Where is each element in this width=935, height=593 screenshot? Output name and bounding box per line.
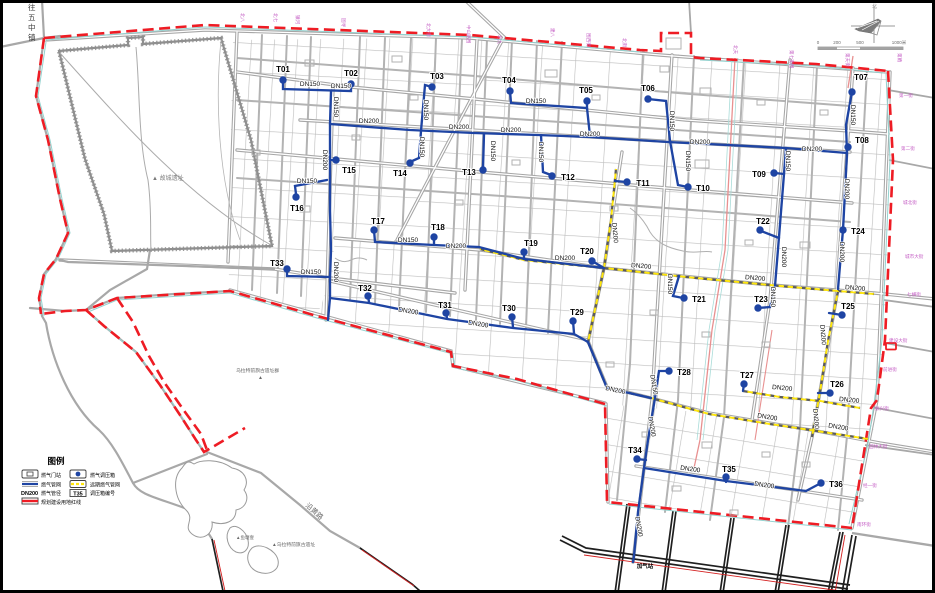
- svg-text:DN200: DN200: [332, 262, 339, 283]
- svg-text:T32: T32: [358, 284, 372, 293]
- svg-text:DN200: DN200: [359, 118, 380, 125]
- svg-text:T18: T18: [431, 223, 445, 232]
- svg-text:T26: T26: [830, 380, 844, 389]
- svg-text:镇: 镇: [28, 32, 36, 42]
- svg-text:北大街: 北大街: [425, 23, 432, 37]
- svg-text:T04: T04: [502, 76, 516, 85]
- svg-text:T27: T27: [740, 371, 754, 380]
- svg-text:DN200: DN200: [446, 243, 467, 250]
- svg-text:T25: T25: [841, 302, 855, 311]
- svg-text:往: 往: [28, 2, 36, 12]
- svg-text:DN200: DN200: [802, 146, 823, 153]
- svg-text:第夫街: 第夫街: [844, 53, 851, 67]
- svg-text:园林大街: 园林大街: [869, 443, 888, 450]
- svg-text:T22: T22: [756, 217, 770, 226]
- svg-text:T11: T11: [636, 179, 650, 188]
- svg-text:DN200: DN200: [838, 242, 845, 263]
- svg-text:T21: T21: [692, 295, 706, 304]
- svg-text:DN150: DN150: [489, 141, 496, 162]
- svg-text:T10: T10: [696, 184, 710, 193]
- svg-text:南环街: 南环街: [857, 521, 871, 528]
- svg-text:T28: T28: [677, 368, 691, 377]
- svg-text:DN150: DN150: [769, 287, 776, 308]
- svg-text:DN150: DN150: [684, 151, 691, 172]
- svg-text:T35: T35: [722, 465, 736, 474]
- svg-text:T05: T05: [579, 86, 593, 95]
- svg-text:围西街: 围西街: [585, 33, 592, 47]
- svg-text:第二街: 第二街: [901, 145, 915, 152]
- svg-text:七横街: 七横街: [907, 291, 921, 298]
- svg-text:DN200: DN200: [690, 139, 711, 146]
- svg-text:五: 五: [28, 13, 36, 22]
- svg-text:DN150: DN150: [666, 274, 673, 295]
- svg-text:DN200: DN200: [321, 150, 328, 171]
- svg-text:燃气管径: 燃气管径: [41, 490, 61, 497]
- svg-text:燃气调压箱: 燃气调压箱: [90, 472, 115, 479]
- svg-text:DN200: DN200: [501, 127, 522, 134]
- svg-text:北: 北: [872, 3, 877, 10]
- svg-text:DN200: DN200: [555, 255, 576, 262]
- svg-text:城北街: 城北街: [903, 199, 917, 206]
- svg-text:T14: T14: [393, 169, 407, 178]
- svg-text:经一街: 经一街: [863, 482, 877, 489]
- svg-text:北夫: 北夫: [732, 45, 739, 55]
- svg-text:规划建设用地红线: 规划建设用地红线: [41, 499, 81, 506]
- svg-text:T03: T03: [430, 72, 444, 81]
- svg-text:T19: T19: [524, 239, 538, 248]
- svg-text:远期燃气管网: 远期燃气管网: [90, 482, 120, 489]
- svg-text:振兴街: 振兴街: [875, 405, 889, 412]
- svg-text:500: 500: [856, 40, 864, 45]
- svg-text:DN200: DN200: [843, 179, 850, 200]
- svg-text:调压箱编号: 调压箱编号: [90, 490, 115, 497]
- svg-text:T34: T34: [628, 446, 642, 455]
- svg-text:T36: T36: [829, 480, 843, 489]
- svg-text:图例: 图例: [47, 456, 65, 466]
- svg-text:T24: T24: [851, 227, 865, 236]
- svg-text:T07: T07: [854, 73, 868, 82]
- svg-text:建设大街: 建设大街: [889, 337, 908, 344]
- svg-text:T23: T23: [754, 295, 768, 304]
- svg-text:城市大街: 城市大街: [905, 253, 924, 260]
- svg-text:DN150: DN150: [331, 83, 352, 90]
- svg-text:北九: 北九: [496, 35, 503, 45]
- svg-text:DN150: DN150: [668, 111, 675, 132]
- svg-text:DN150: DN150: [526, 98, 547, 105]
- svg-text:乌拉特前旗古遗址群: 乌拉特前旗古遗址群: [236, 367, 279, 374]
- svg-text:T08: T08: [855, 136, 869, 145]
- svg-text:第一街: 第一街: [899, 92, 913, 99]
- svg-text:DN150: DN150: [418, 137, 425, 158]
- svg-text:北街: 北街: [621, 38, 628, 48]
- svg-text:T06: T06: [641, 84, 655, 93]
- svg-text:DN150: DN150: [537, 142, 544, 163]
- svg-text:DN200: DN200: [780, 247, 787, 268]
- svg-text:▲: ▲: [258, 375, 263, 381]
- svg-text:DN150: DN150: [300, 81, 321, 88]
- svg-text:第戭: 第戭: [896, 53, 903, 63]
- svg-text:DN150: DN150: [784, 151, 791, 172]
- svg-text:DN150: DN150: [297, 178, 318, 185]
- svg-text:DN150: DN150: [301, 269, 322, 276]
- svg-text:第七街围: 第七街围: [788, 50, 795, 69]
- svg-text:T30: T30: [502, 304, 516, 313]
- svg-text:200: 200: [833, 40, 841, 45]
- svg-text:加气站: 加气站: [636, 562, 654, 570]
- svg-text:北八: 北八: [239, 13, 246, 23]
- svg-text:DN200: DN200: [449, 124, 470, 131]
- svg-text:中山路围: 中山路围: [465, 25, 472, 44]
- svg-text:T17: T17: [371, 217, 385, 226]
- svg-text:▲ 故城遗址: ▲ 故城遗址: [152, 174, 184, 182]
- svg-text:中: 中: [28, 22, 36, 32]
- svg-text:北七: 北七: [272, 13, 279, 23]
- svg-text:DN150: DN150: [398, 237, 419, 244]
- svg-text:T33: T33: [270, 259, 284, 268]
- svg-text:T12: T12: [561, 173, 575, 182]
- svg-text:DN150: DN150: [422, 100, 429, 121]
- svg-text:燃气管网: 燃气管网: [41, 482, 61, 489]
- svg-text:前进街: 前进街: [883, 366, 897, 373]
- svg-text:▲鱼塘壹: ▲鱼塘壹: [236, 534, 254, 541]
- svg-text:T15: T15: [342, 166, 356, 175]
- svg-text:DN150: DN150: [849, 105, 856, 126]
- svg-text:燃气门站: 燃气门站: [41, 472, 61, 479]
- svg-text:T29: T29: [570, 308, 584, 317]
- svg-text:DN150: DN150: [332, 97, 339, 118]
- svg-text:T13: T13: [462, 168, 476, 177]
- svg-text:DN200: DN200: [21, 491, 38, 497]
- svg-text:▲乌拉特前旗古遗址: ▲乌拉特前旗古遗址: [272, 541, 315, 548]
- svg-text:T01: T01: [276, 65, 290, 74]
- svg-text:建八: 建八: [549, 28, 556, 38]
- svg-text:T16: T16: [290, 204, 304, 213]
- svg-text:镇河: 镇河: [294, 15, 301, 25]
- svg-text:T02: T02: [344, 69, 358, 78]
- svg-text:T20: T20: [580, 247, 594, 256]
- svg-text:T09: T09: [752, 170, 766, 179]
- svg-text:1000米: 1000米: [892, 39, 907, 46]
- svg-text:DN200: DN200: [580, 131, 601, 138]
- svg-text:T31: T31: [438, 301, 452, 310]
- svg-text:T35: T35: [73, 492, 82, 498]
